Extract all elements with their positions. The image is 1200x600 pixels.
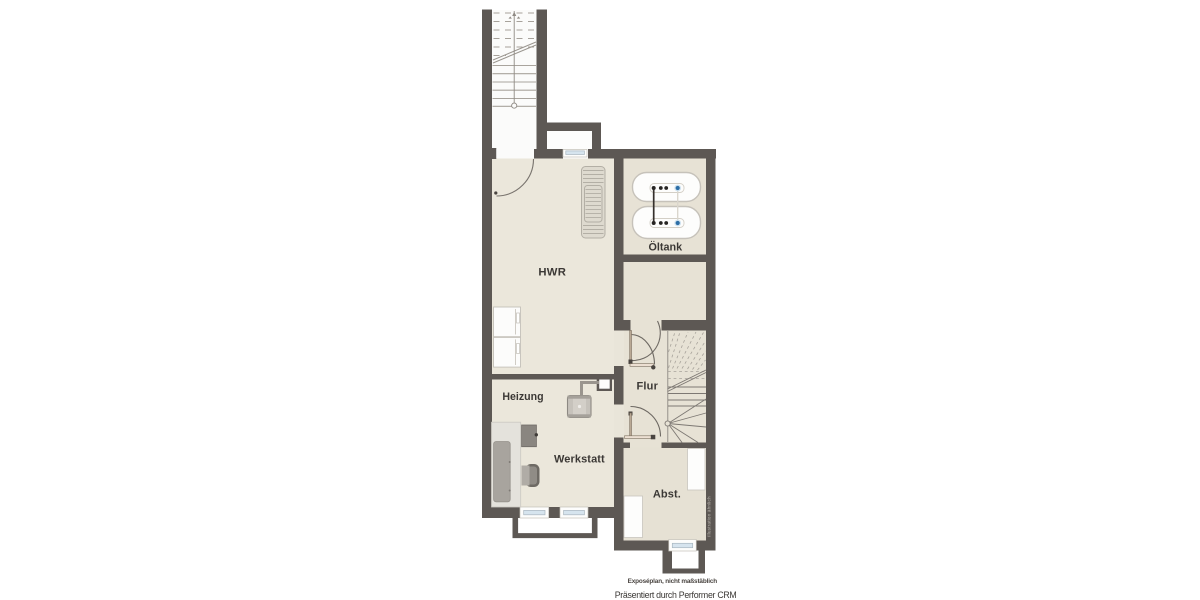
svg-text:Flur: Flur (637, 380, 659, 392)
svg-text:Abst.: Abst. (653, 488, 681, 500)
svg-text:Illustration ähnlich: Illustration ähnlich (707, 496, 712, 537)
svg-text:Präsentiert durch Performer CR: Präsentiert durch Performer CRM (615, 590, 737, 600)
svg-text:Werkstatt: Werkstatt (554, 453, 605, 465)
svg-text:HWR: HWR (538, 267, 566, 279)
svg-text:Exposéplan, nicht maßstäblich: Exposéplan, nicht maßstäblich (628, 578, 718, 585)
svg-text:Heizung: Heizung (502, 391, 543, 403)
svg-text:Öltank: Öltank (648, 241, 683, 254)
